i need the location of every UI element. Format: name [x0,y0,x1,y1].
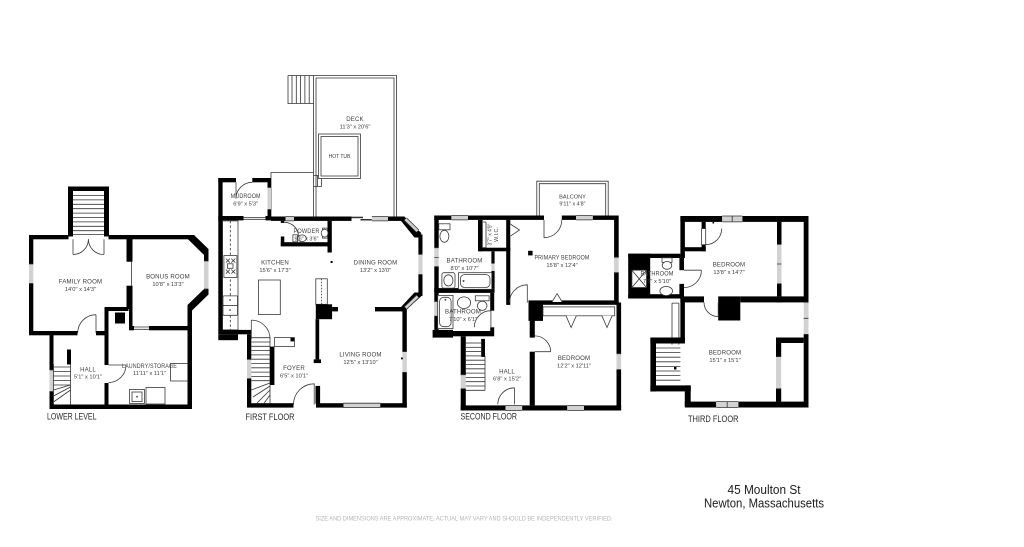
svg-text:POWDER: POWDER [294,228,320,235]
svg-text:14'0" x 14'3": 14'0" x 14'3" [65,287,96,293]
svg-text:SIZE AND DIMENSIONS ARE APPROX: SIZE AND DIMENSIONS ARE APPROXIMATE, ACT… [316,516,613,523]
svg-text:8'0" x 10'7": 8'0" x 10'7" [450,266,478,272]
svg-text:LOWER LEVEL: LOWER LEVEL [47,412,97,422]
svg-text:12'5" x 13'10": 12'5" x 13'10" [343,360,377,366]
svg-text:15'8" x 12'4": 15'8" x 12'4" [546,263,577,269]
svg-text:HALL: HALL [499,368,515,375]
svg-text:MUDROOM: MUDROOM [231,193,261,200]
svg-text:BONUS ROOM: BONUS ROOM [146,274,190,281]
svg-text:BEDROOM: BEDROOM [709,350,742,357]
svg-text:HALL: HALL [80,367,96,374]
svg-text:LIVING ROOM: LIVING ROOM [339,352,381,359]
svg-text:15'1" x 15'1": 15'1" x 15'1" [709,358,740,364]
svg-text:7'10" x 6'1": 7'10" x 6'1" [449,317,477,323]
svg-text:13'2" x 13'0": 13'2" x 13'0" [360,268,391,274]
svg-text:DINING ROOM: DINING ROOM [354,260,398,267]
svg-text:12'2" x 12'11": 12'2" x 12'11" [557,364,591,370]
svg-text:11'11" x 11'1": 11'11" x 11'1" [133,371,166,377]
svg-text:THIRD FLOOR: THIRD FLOOR [688,414,739,424]
svg-text:11'3" x 20'6": 11'3" x 20'6" [340,125,371,131]
svg-text:6'5" x 10'1": 6'5" x 10'1" [280,374,308,380]
svg-text:FAMILY ROOM: FAMILY ROOM [59,279,102,286]
svg-text:6'8" x 15'2": 6'8" x 15'2" [493,376,521,382]
svg-text:5'1" x 10'1": 5'1" x 10'1" [74,375,102,381]
svg-text:FIRST FLOOR: FIRST FLOOR [246,412,295,422]
svg-text:BEDROOM: BEDROOM [713,262,746,269]
svg-text:DECK: DECK [346,116,364,123]
svg-text:HOT TUB: HOT TUB [329,154,351,160]
svg-text:7'3" x 5'10": 7'3" x 5'10" [643,279,671,285]
svg-text:BATHROOM: BATHROOM [445,309,481,316]
svg-text:13'8" x 14'7": 13'8" x 14'7" [713,270,744,276]
svg-text:9'11" x 4'8": 9'11" x 4'8" [559,202,585,208]
svg-text:3'7" x 4'9": 3'7" x 4'9" [488,223,494,245]
svg-text:SECOND FLOOR: SECOND FLOOR [461,412,518,422]
svg-text:BATHROOM: BATHROOM [641,271,674,278]
svg-text:W.I.C.: W.I.C. [494,227,500,242]
svg-text:BALCONY: BALCONY [559,195,586,201]
svg-text:15'6" x 17'3": 15'6" x 17'3" [259,268,290,274]
svg-text:FOYER: FOYER [283,365,305,372]
svg-text:BEDROOM: BEDROOM [558,355,591,362]
svg-text:KITCHEN: KITCHEN [261,260,289,267]
svg-text:PRIMARY BEDROOM: PRIMARY BEDROOM [535,255,590,262]
svg-text:LAUNDRY/STORAGE: LAUNDRY/STORAGE [122,363,177,370]
svg-text:9'6" x 3'6": 9'6" x 3'6" [295,236,319,242]
svg-text:10'8" x 13'3": 10'8" x 13'3" [152,282,183,288]
svg-text:BATHROOM: BATHROOM [447,258,483,265]
svg-text:6'9" x 5'3": 6'9" x 5'3" [233,202,258,208]
svg-text:Newton, Massachusetts: Newton, Massachusetts [704,496,824,511]
